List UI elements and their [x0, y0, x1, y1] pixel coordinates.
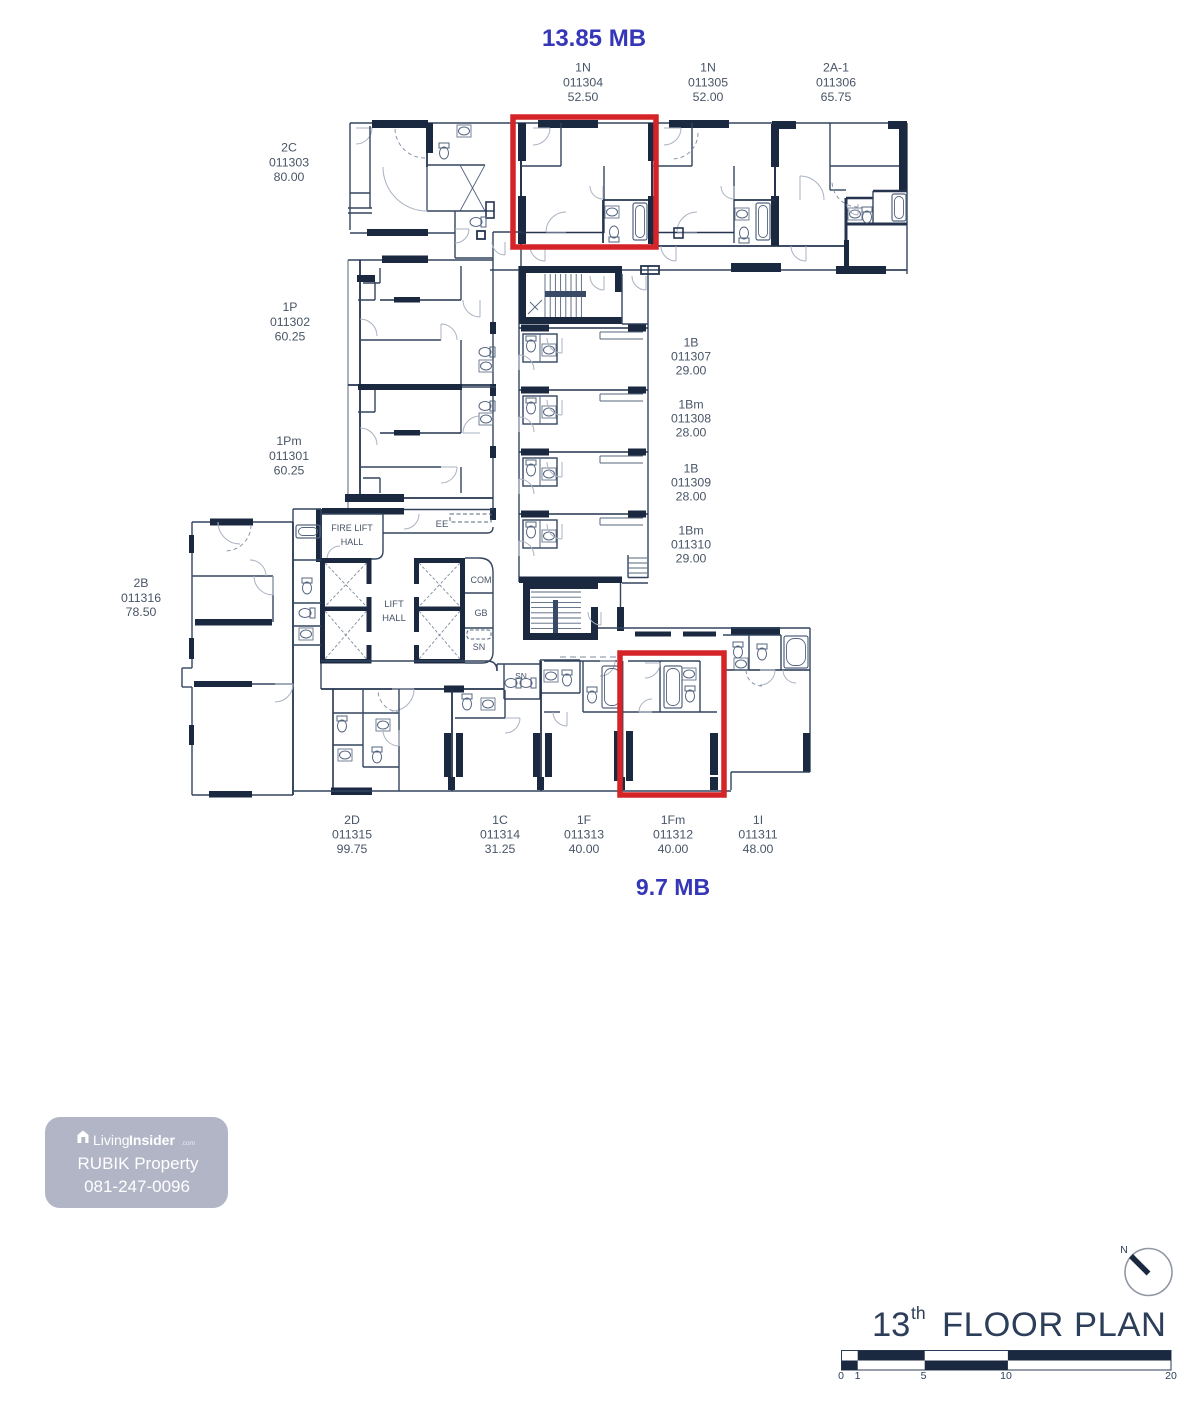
svg-text:0: 0 — [838, 1370, 844, 1382]
svg-text:GB: GB — [474, 608, 487, 618]
svg-text:52.00: 52.00 — [693, 90, 724, 104]
svg-text:N: N — [1120, 1244, 1128, 1256]
svg-text:1: 1 — [855, 1370, 861, 1382]
svg-text:99.75: 99.75 — [337, 842, 368, 856]
svg-text:2D: 2D — [344, 813, 360, 827]
svg-text:FLOOR PLAN: FLOOR PLAN — [942, 1306, 1167, 1344]
svg-text:1B: 1B — [683, 462, 698, 476]
svg-text:1P: 1P — [282, 300, 297, 314]
svg-text:13: 13 — [872, 1306, 910, 1344]
svg-text:78.50: 78.50 — [126, 605, 157, 619]
svg-text:011308: 011308 — [671, 412, 711, 426]
svg-text:80.00: 80.00 — [274, 170, 305, 184]
svg-text:COM: COM — [471, 575, 492, 585]
svg-text:FIRE LIFT: FIRE LIFT — [331, 523, 373, 533]
svg-text:011304: 011304 — [563, 76, 603, 90]
svg-text:SN: SN — [473, 642, 486, 652]
svg-text:011306: 011306 — [816, 76, 856, 90]
svg-text:31.25: 31.25 — [485, 842, 516, 856]
svg-text:EE: EE — [436, 519, 449, 530]
svg-text:HALL: HALL — [341, 537, 364, 547]
svg-text:011310: 011310 — [671, 538, 711, 552]
svg-text:1Bm: 1Bm — [678, 398, 703, 412]
svg-text:011314: 011314 — [480, 828, 520, 842]
svg-text:40.00: 40.00 — [569, 842, 600, 856]
svg-text:40.00: 40.00 — [658, 842, 689, 856]
svg-text:1I: 1I — [753, 813, 763, 827]
svg-text:RUBIK Property: RUBIK Property — [78, 1154, 199, 1173]
svg-text:10: 10 — [1000, 1370, 1012, 1382]
svg-text:081-247-0096: 081-247-0096 — [84, 1177, 190, 1196]
svg-text:28.00: 28.00 — [676, 426, 707, 440]
svg-text:65.75: 65.75 — [821, 90, 852, 104]
svg-text:20: 20 — [1165, 1370, 1177, 1382]
svg-text:13.85 MB: 13.85 MB — [542, 25, 646, 52]
svg-text:9.7 MB: 9.7 MB — [636, 874, 710, 900]
svg-text:011313: 011313 — [564, 828, 604, 842]
svg-text:60.25: 60.25 — [275, 330, 306, 344]
svg-text:011302: 011302 — [270, 315, 310, 329]
svg-text:011307: 011307 — [671, 350, 711, 364]
svg-text:HALL: HALL — [382, 613, 406, 624]
svg-text:1B: 1B — [683, 336, 698, 350]
svg-text:2B: 2B — [133, 576, 148, 590]
svg-text:Insider: Insider — [129, 1132, 175, 1148]
svg-text:1C: 1C — [492, 813, 508, 827]
svg-text:2C: 2C — [281, 141, 297, 155]
svg-text:28.00: 28.00 — [676, 490, 707, 504]
svg-text:011311: 011311 — [738, 828, 777, 842]
svg-text:2A-1: 2A-1 — [823, 61, 849, 75]
svg-text:29.00: 29.00 — [676, 364, 707, 378]
svg-text:1Pm: 1Pm — [276, 434, 301, 448]
svg-text:011309: 011309 — [671, 476, 711, 490]
svg-text:1N: 1N — [700, 61, 716, 75]
svg-text:52.50: 52.50 — [568, 90, 599, 104]
svg-text:Living: Living — [93, 1132, 130, 1148]
svg-text:5: 5 — [921, 1370, 927, 1382]
svg-text:th: th — [911, 1303, 926, 1323]
svg-text:48.00: 48.00 — [743, 842, 774, 856]
svg-text:011301: 011301 — [269, 449, 309, 463]
svg-text:1Bm: 1Bm — [678, 524, 703, 538]
svg-text:011312: 011312 — [653, 828, 693, 842]
svg-text:011305: 011305 — [688, 76, 728, 90]
svg-text:29.00: 29.00 — [676, 552, 707, 566]
svg-text:011315: 011315 — [332, 828, 372, 842]
svg-text:60.25: 60.25 — [274, 464, 305, 478]
svg-text:011316: 011316 — [121, 591, 161, 605]
svg-text:1F: 1F — [577, 813, 592, 827]
svg-text:1N: 1N — [575, 61, 591, 75]
svg-text:.com: .com — [181, 1140, 195, 1147]
svg-text:1Fm: 1Fm — [661, 813, 686, 827]
svg-text:011303: 011303 — [269, 156, 309, 170]
svg-text:LIFT: LIFT — [384, 599, 404, 610]
